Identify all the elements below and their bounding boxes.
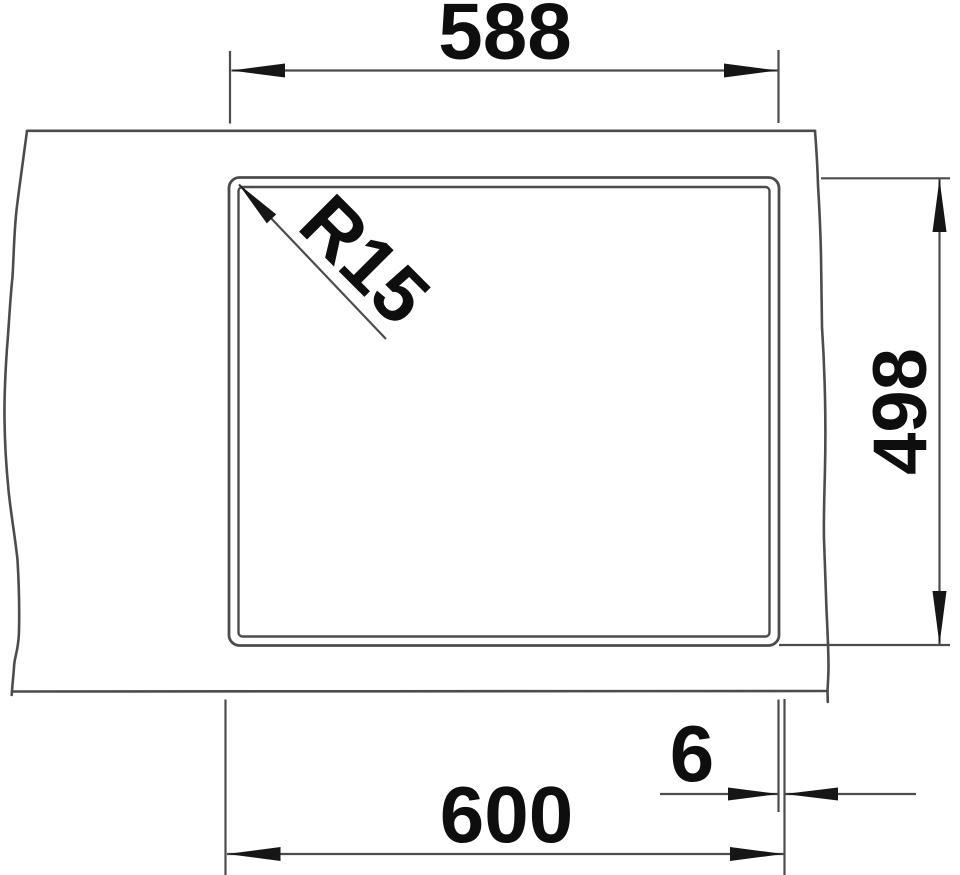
svg-text:588: 588 [438, 0, 571, 76]
svg-text:498: 498 [858, 348, 943, 475]
svg-text:R15: R15 [283, 178, 446, 341]
svg-text:600: 600 [440, 770, 573, 859]
svg-text:6: 6 [670, 709, 715, 798]
